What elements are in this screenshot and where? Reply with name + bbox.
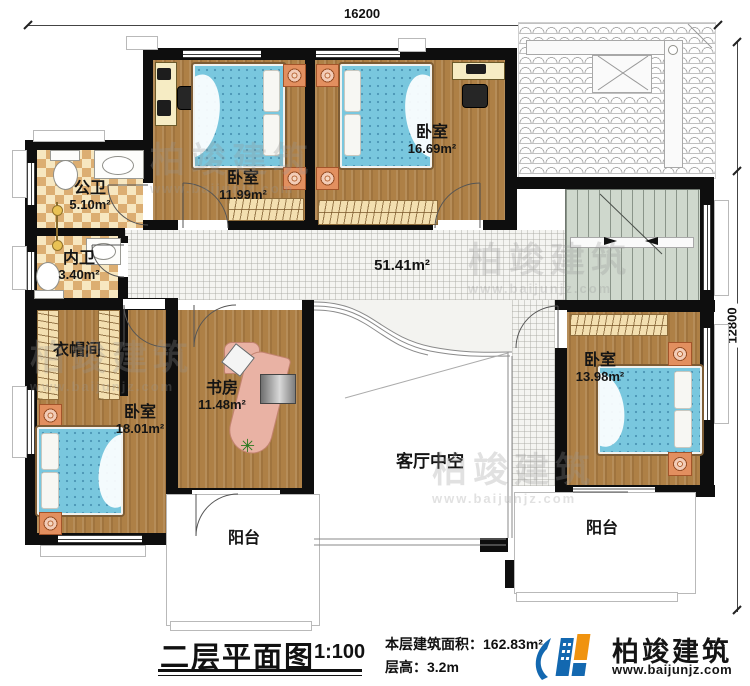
nightstand (39, 512, 62, 535)
window-sill-outline (33, 130, 105, 142)
desk-lamp (157, 68, 171, 80)
hall-floor (125, 230, 570, 300)
desk-computer (157, 100, 171, 116)
wardrobe (318, 200, 438, 225)
chair (462, 84, 488, 108)
stair-landing-band (570, 237, 694, 248)
room-label-bedroom-bottom-left: 卧室18.01m² (116, 404, 164, 436)
door-gap (178, 220, 228, 230)
plan-scale: 1:100 (314, 641, 365, 664)
balcony-edge-outline (514, 492, 696, 594)
pillow (344, 70, 361, 112)
window-sill-outline (714, 200, 729, 296)
balcony-left-label: 阳台 (228, 530, 260, 548)
room-label-bedroom-bottom-right: 卧室13.98m² (576, 352, 624, 384)
void-label: 客厅中空 (396, 452, 464, 471)
floor-height-text: 层高：3.2m (385, 657, 459, 677)
balcony-edge-outline (166, 494, 320, 626)
nightstand (668, 452, 692, 476)
window-sill-outline (12, 246, 27, 290)
window (27, 163, 35, 205)
balcony-edge-outline (170, 621, 312, 631)
toilet-base (34, 290, 64, 299)
window-sill-outline (12, 150, 27, 198)
wall (305, 48, 315, 228)
window-sill-outline (12, 386, 27, 458)
window (183, 50, 261, 58)
roof-ridge-horizontal (526, 40, 678, 55)
room-label-public-bathroom: 公卫5.10m² (69, 180, 110, 212)
pillow (41, 433, 59, 470)
hall-area-label: 51.41m² (374, 258, 430, 275)
room-label-bedroom-top-right: 卧室16.69m² (408, 124, 456, 156)
title-underline-thick (158, 669, 362, 672)
roof-ridge-vertical (664, 40, 683, 168)
room-label-bedroom-top-left: 卧室11.99m² (219, 170, 267, 202)
wall (505, 48, 517, 230)
title-underline-thin (158, 675, 362, 676)
toilet-bowl (36, 262, 60, 291)
window (27, 390, 35, 454)
bed-sheet (94, 432, 123, 511)
monitor (260, 374, 296, 404)
window (703, 328, 711, 420)
hall-floor-strip (512, 300, 555, 486)
pillow (674, 371, 692, 409)
window (27, 252, 35, 290)
rail-knob (52, 205, 63, 216)
pillow (41, 472, 59, 509)
brand-website: www.baijunjz.com (612, 662, 732, 677)
brand-logo-icon (528, 630, 608, 684)
room-label-inner-bathroom: 内卫3.40m² (58, 250, 99, 282)
window-sill-outline (714, 324, 729, 424)
wall (515, 177, 714, 189)
balcony-right-label: 阳台 (586, 520, 618, 538)
room-label-cloakroom: 衣帽间 (53, 342, 101, 360)
window-sill-outline (40, 545, 146, 557)
pillow (344, 114, 361, 156)
pillow (263, 70, 280, 112)
void-rail-post (480, 538, 508, 552)
window (58, 535, 142, 543)
sink-basin (102, 156, 134, 175)
door-gap (555, 310, 567, 348)
nightstand (283, 64, 306, 87)
door-gap (433, 220, 483, 230)
nightstand (668, 342, 692, 366)
roof-vent-circle (668, 45, 678, 55)
plant: ✳ (240, 436, 255, 457)
nightstand (316, 167, 339, 190)
nightstand (316, 64, 339, 87)
window (316, 50, 400, 58)
wall (25, 228, 125, 236)
door-gap (123, 299, 165, 309)
desk-computer (466, 64, 486, 74)
wardrobe (98, 310, 120, 400)
floor-plan: 16200 12800 (0, 0, 750, 686)
pillow (674, 410, 692, 448)
window-sill-outline (126, 36, 158, 50)
wardrobe (570, 314, 668, 336)
window-sill-outline (398, 38, 426, 52)
room-label-study: 书房11.48m² (198, 380, 246, 412)
wall (555, 300, 715, 312)
floor-area-text: 本层建筑面积：162.83m² (385, 634, 543, 654)
bed-sheet (193, 71, 226, 161)
roof-skylight-box (592, 55, 652, 93)
balcony-edge-outline (516, 592, 678, 602)
nightstand (283, 167, 306, 190)
top-dimension-label: 16200 (340, 6, 384, 21)
window (703, 205, 711, 290)
pillow (263, 114, 280, 156)
nightstand (39, 404, 62, 427)
door-gap (143, 183, 153, 223)
